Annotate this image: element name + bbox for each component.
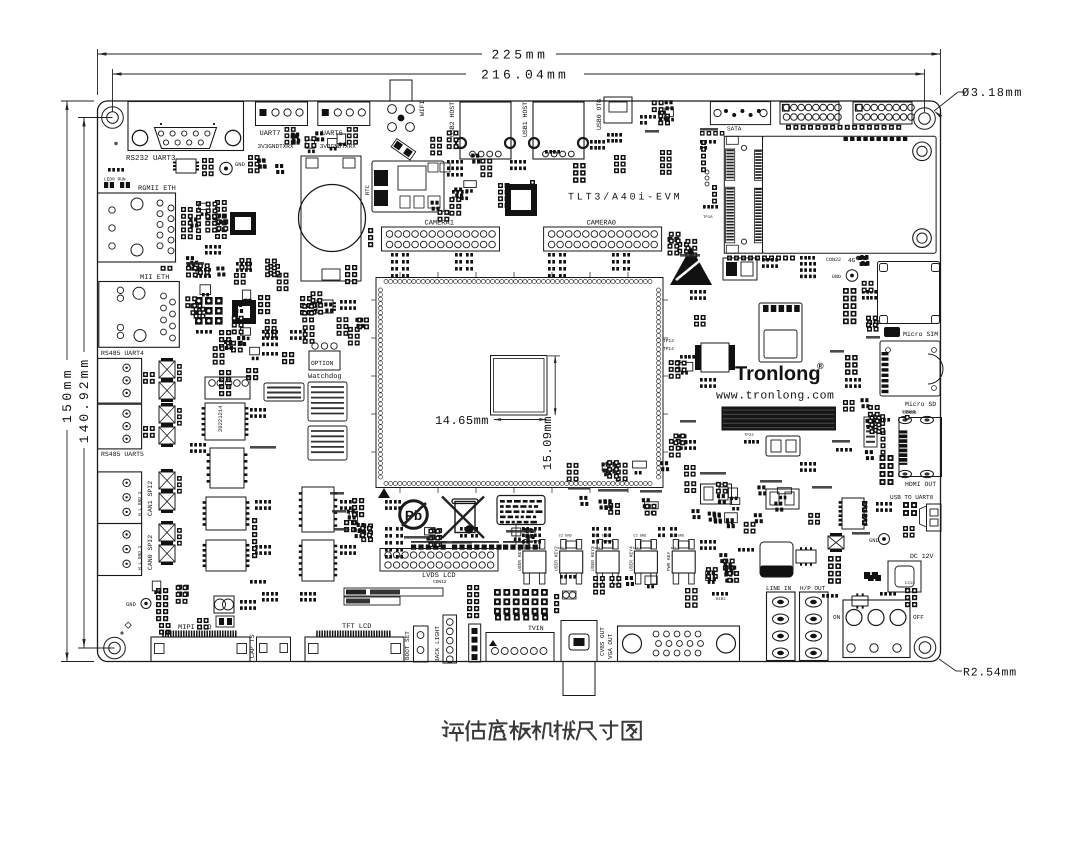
svg-text:CAN0 SPI2: CAN0 SPI2: [147, 535, 154, 570]
svg-text:UART7: UART7: [260, 130, 281, 138]
svg-text:TP13: TP13: [663, 338, 674, 344]
svg-text:GND: GND: [832, 274, 841, 280]
svg-text:BOOT SET: BOOT SET: [404, 631, 411, 660]
svg-text:C213: C213: [905, 581, 915, 586]
svg-text:R102: R102: [716, 597, 726, 602]
svg-text:USER KEY3: USER KEY3: [590, 546, 596, 571]
svg-text:C2 GND: C2 GND: [671, 534, 684, 539]
svg-text:C2 GND: C2 GND: [559, 534, 572, 539]
svg-text:USER KEY1: USER KEY1: [517, 546, 523, 571]
svg-text:PWR KEY: PWR KEY: [666, 551, 672, 571]
svg-text:VGA OUT: VGA OUT: [607, 633, 614, 659]
svg-text:H L GND_1: H L GND_1: [137, 545, 143, 570]
svg-text:C2 GND: C2 GND: [633, 534, 646, 539]
svg-text:®: ®: [817, 361, 824, 371]
svg-text:H/P OUT: H/P OUT: [800, 585, 826, 592]
svg-text:140.92mm: 140.92mm: [77, 357, 92, 443]
svg-text:USER KEY4: USER KEY4: [628, 546, 634, 571]
svg-text:20221214: 20221214: [217, 405, 224, 432]
svg-text:LVDS LCD: LVDS LCD: [422, 572, 456, 580]
svg-text:CAMERA0: CAMERA0: [587, 220, 616, 228]
svg-text:LED0 RUN: LED0 RUN: [104, 177, 126, 183]
svg-text:TP22: TP22: [744, 433, 754, 438]
svg-text:OFF: OFF: [913, 614, 924, 621]
svg-text:TP14: TP14: [663, 347, 674, 352]
svg-text:KEY: KEY: [671, 546, 677, 550]
svg-text:CON60: CON60: [902, 409, 916, 415]
svg-text:150mm: 150mm: [60, 367, 75, 423]
svg-text:H L GND_1: H L GND_1: [137, 491, 143, 516]
svg-text:RS485 UART4: RS485 UART4: [101, 350, 144, 357]
svg-text:Micro SD: Micro SD: [905, 401, 936, 408]
svg-text:USB0 OTG: USB0 OTG: [596, 99, 603, 130]
svg-text:MII ETH: MII ETH: [140, 274, 169, 282]
svg-text:225mm: 225mm: [491, 48, 548, 63]
svg-text:HDMI OUT: HDMI OUT: [905, 481, 936, 488]
svg-text:Micro SIM: Micro SIM: [903, 331, 938, 338]
svg-text:LINE IN: LINE IN: [766, 585, 792, 592]
svg-text:216.04mm: 216.04mm: [481, 68, 569, 83]
svg-text:CAN1 SPI2: CAN1 SPI2: [147, 481, 154, 516]
svg-text:USER KEY2: USER KEY2: [554, 546, 560, 571]
svg-text:CON12: CON12: [433, 579, 447, 585]
svg-text:RS485 UART5: RS485 UART5: [101, 451, 144, 458]
svg-text:GND: GND: [235, 161, 246, 168]
svg-text:Tronlong: Tronlong: [735, 363, 821, 385]
svg-text:CAP TS: CAP TS: [249, 634, 256, 658]
svg-text:4G: 4G: [848, 257, 856, 264]
svg-text:ON: ON: [833, 614, 841, 621]
svg-text:RS232 UART3: RS232 UART3: [126, 154, 176, 163]
svg-text:R2.54mm: R2.54mm: [963, 667, 1017, 680]
svg-text:RGMII ETH: RGMII ETH: [138, 185, 176, 193]
svg-text:GND: GND: [869, 537, 880, 544]
svg-text:GND: GND: [126, 601, 137, 608]
svg-text:14.65mm: 14.65mm: [435, 414, 489, 428]
svg-text:SATA: SATA: [727, 126, 742, 133]
svg-text:DC 12V: DC 12V: [910, 553, 934, 560]
svg-text:Watchdog: Watchdog: [308, 372, 342, 381]
svg-text:RTC: RTC: [364, 184, 371, 195]
svg-text:CON22: CON22: [826, 257, 841, 263]
svg-text:CVBS OUT: CVBS OUT: [599, 627, 606, 656]
svg-text:WIFI: WIFI: [419, 100, 426, 116]
svg-text:TLT3/A40i-EVM: TLT3/A40i-EVM: [568, 192, 682, 204]
svg-text:15.09mm: 15.09mm: [541, 416, 555, 470]
svg-text:TP16: TP16: [703, 215, 713, 220]
svg-text:USB1 HOST: USB1 HOST: [522, 102, 529, 137]
svg-text:BACK LIGHT: BACK LIGHT: [434, 626, 441, 662]
svg-text:TVIN: TVIN: [528, 625, 544, 632]
svg-text:Ø3.18mm: Ø3.18mm: [962, 86, 1023, 100]
svg-text:USB TO UART0: USB TO UART0: [890, 494, 934, 501]
svg-text:TFT LCD: TFT LCD: [342, 623, 371, 631]
svg-text:OPTION: OPTION: [311, 360, 334, 367]
svg-text:www.tronlong.com: www.tronlong.com: [716, 390, 834, 403]
